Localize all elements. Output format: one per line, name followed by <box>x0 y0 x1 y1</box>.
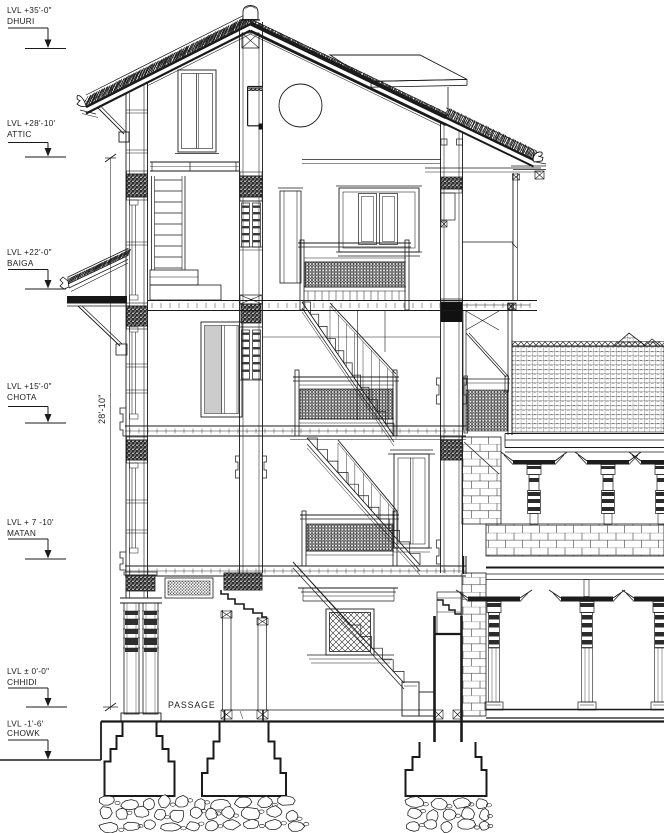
svg-text:LVL ± 0'-0": LVL ± 0'-0" <box>7 666 49 676</box>
svg-text:LVL +22'-0": LVL +22'-0" <box>7 247 52 257</box>
svg-text:CHHIDI: CHHIDI <box>7 677 37 687</box>
svg-text:ATTIC: ATTIC <box>7 129 32 139</box>
svg-text:CHOWK: CHOWK <box>7 728 40 738</box>
svg-text:PASSAGE: PASSAGE <box>168 700 216 710</box>
svg-text:LVL +28'-10': LVL +28'-10' <box>7 118 56 128</box>
svg-text:CHOTA: CHOTA <box>7 392 37 402</box>
svg-text:LVL -1'-6': LVL -1'-6' <box>7 719 44 729</box>
svg-text:28'-10": 28'-10" <box>97 394 107 424</box>
svg-text:LVL +35'-0": LVL +35'-0" <box>7 5 52 15</box>
svg-text:BAIGA: BAIGA <box>7 258 34 268</box>
svg-text:MATAN: MATAN <box>7 528 36 538</box>
svg-text:LVL + 7 -10': LVL + 7 -10' <box>7 517 54 527</box>
svg-text:DHURI: DHURI <box>7 16 35 26</box>
svg-text:LVL +15'-0": LVL +15'-0" <box>7 381 52 391</box>
